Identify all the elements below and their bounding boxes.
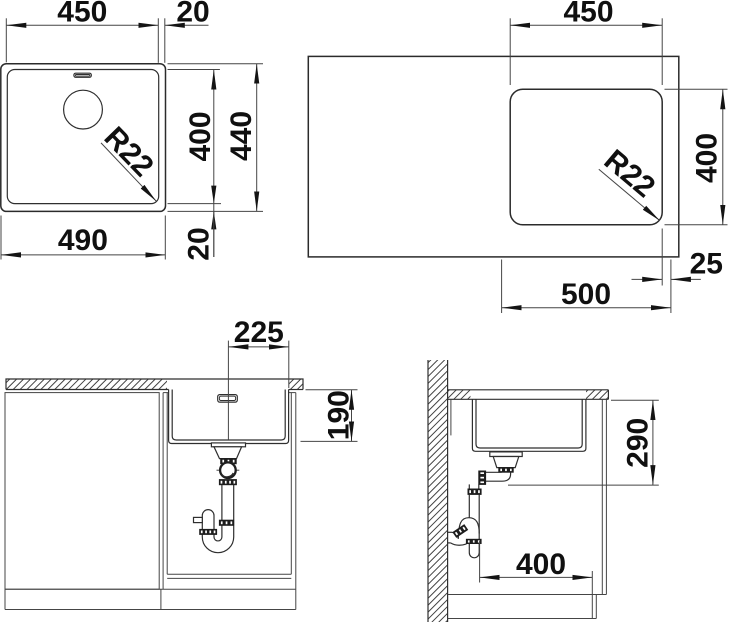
svg-text:225: 225 [234, 316, 284, 349]
svg-text:450: 450 [57, 0, 107, 28]
svg-text:290: 290 [622, 418, 655, 468]
svg-text:400: 400 [691, 133, 724, 183]
svg-text:25: 25 [690, 248, 723, 281]
svg-text:500: 500 [561, 278, 611, 311]
svg-text:190: 190 [323, 390, 356, 440]
svg-text:440: 440 [225, 111, 258, 161]
svg-text:400: 400 [184, 111, 217, 161]
svg-text:490: 490 [58, 224, 108, 257]
svg-text:450: 450 [563, 0, 613, 28]
svg-text:400: 400 [516, 548, 566, 581]
svg-text:20: 20 [176, 0, 209, 28]
svg-text:20: 20 [183, 227, 216, 260]
